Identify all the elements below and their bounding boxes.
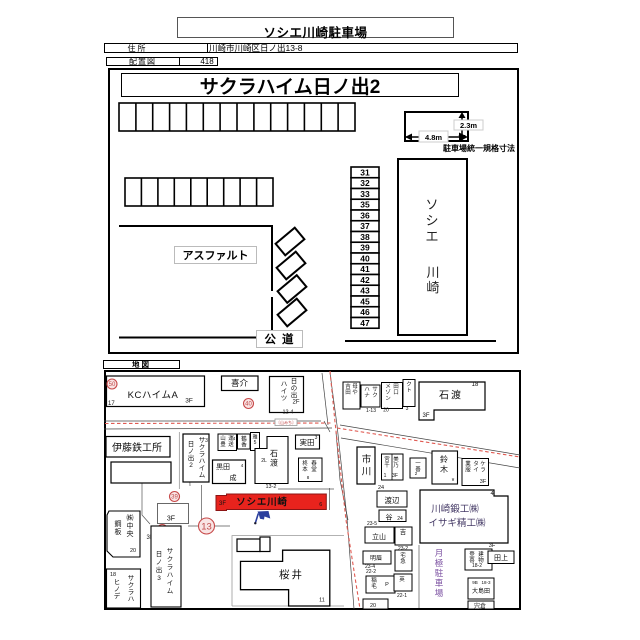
svg-text:美: 美: [393, 455, 399, 463]
svg-text:イ: イ: [473, 468, 479, 474]
svg-text:32: 32: [360, 178, 370, 188]
svg-text:ケ: ケ: [480, 461, 486, 468]
svg-text:伊藤鉄工所: 伊藤鉄工所: [112, 441, 162, 454]
svg-text:13: 13: [201, 521, 212, 532]
svg-text:43: 43: [360, 286, 370, 296]
svg-text:サ: サ: [199, 436, 206, 444]
svg-text:デ: デ: [114, 591, 121, 600]
svg-text:山: 山: [220, 434, 226, 442]
svg-text:サ: サ: [372, 386, 378, 393]
svg-text:日: 日: [188, 440, 195, 448]
svg-text:豊: 豊: [220, 440, 226, 448]
svg-text:4.8m: 4.8m: [425, 133, 442, 142]
svg-text:タ: タ: [473, 460, 479, 468]
svg-text:39: 39: [360, 243, 370, 253]
svg-text:千: 千: [384, 461, 390, 469]
svg-text:シ: シ: [425, 213, 438, 228]
svg-text:日: 日: [291, 377, 298, 385]
svg-text:ク: ク: [372, 392, 378, 399]
svg-text:3: 3: [205, 438, 208, 444]
svg-text:20: 20: [383, 408, 389, 414]
svg-text:3: 3: [315, 435, 318, 441]
svg-text:実田: 実田: [300, 437, 315, 447]
svg-text:乃: 乃: [393, 462, 399, 469]
svg-text:3F: 3F: [489, 543, 496, 549]
svg-text:柊: 柊: [302, 459, 308, 467]
svg-text:37: 37: [360, 221, 370, 231]
svg-text:木: 木: [440, 464, 448, 474]
svg-text:42: 42: [360, 275, 370, 285]
svg-text:鶴: 鶴: [241, 435, 247, 443]
svg-text:2.3m: 2.3m: [460, 121, 477, 130]
svg-text:ノ: ノ: [188, 448, 195, 455]
svg-text:24: 24: [378, 485, 384, 491]
svg-text:中: 中: [127, 521, 134, 530]
svg-text:黒田: 黒田: [216, 463, 230, 471]
svg-text:24: 24: [397, 516, 403, 522]
svg-text:イサギ精工㈱: イサギ精工㈱: [428, 517, 486, 529]
svg-text:22-2: 22-2: [366, 569, 376, 575]
svg-text:ン: ン: [385, 396, 391, 402]
svg-text:ム: ム: [167, 587, 174, 595]
svg-text:出: 出: [188, 453, 195, 462]
svg-text:ム: ム: [199, 471, 206, 479]
svg-text:母: 母: [352, 383, 358, 390]
svg-text:英: 英: [399, 575, 405, 583]
svg-text:3: 3: [157, 575, 161, 582]
svg-text:ツ: ツ: [281, 395, 288, 402]
svg-text:ハ: ハ: [128, 596, 135, 603]
svg-text:2L: 2L: [261, 458, 267, 464]
svg-text:ラ: ラ: [480, 467, 486, 474]
svg-text:渡辺: 渡辺: [385, 495, 400, 505]
svg-text:堂: 堂: [311, 465, 317, 473]
svg-text:39: 39: [171, 495, 178, 501]
svg-text:急: 急: [400, 557, 406, 565]
svg-text:ハ: ハ: [281, 381, 288, 388]
svg-text:成: 成: [230, 473, 237, 482]
svg-text:ソシエ川崎: ソシエ川崎: [236, 496, 288, 508]
svg-text:鈴: 鈴: [440, 454, 448, 464]
svg-text:6: 6: [319, 502, 322, 508]
svg-text:20: 20: [130, 548, 136, 554]
svg-text:40: 40: [245, 402, 252, 408]
svg-text:登: 登: [469, 550, 475, 558]
svg-text:口: 口: [393, 389, 399, 396]
svg-text:毛: 毛: [371, 582, 377, 590]
svg-text:ラ: ラ: [199, 450, 206, 458]
svg-text:崎: 崎: [426, 280, 439, 295]
svg-text:の: の: [291, 385, 298, 392]
svg-text:吉: 吉: [345, 383, 351, 390]
svg-text:50: 50: [109, 382, 116, 388]
svg-text:エ: エ: [425, 229, 438, 244]
svg-text:35: 35: [360, 200, 370, 210]
svg-text:石: 石: [270, 449, 278, 458]
svg-text:18: 18: [110, 572, 116, 578]
svg-text:46: 46: [360, 307, 370, 317]
svg-text:〔山みち〕: 〔山みち〕: [276, 419, 296, 425]
svg-text:41: 41: [360, 264, 370, 274]
svg-text:3F: 3F: [219, 501, 226, 507]
svg-text:喜介: 喜介: [231, 378, 249, 388]
svg-text:3F: 3F: [167, 516, 175, 523]
svg-text:ク: ク: [128, 581, 135, 589]
svg-text:日: 日: [156, 550, 163, 558]
svg-text:12-4: 12-4: [282, 410, 293, 416]
svg-text:ラ: ラ: [167, 563, 174, 571]
svg-text:谷: 谷: [386, 513, 393, 522]
svg-text:鋼: 鋼: [115, 519, 122, 528]
svg-text:渡: 渡: [270, 458, 278, 468]
svg-text:1: 1: [384, 473, 387, 479]
svg-text:サ: サ: [167, 547, 174, 555]
svg-text:川: 川: [362, 467, 372, 478]
svg-text:3F: 3F: [480, 479, 487, 485]
svg-text:3: 3: [406, 406, 409, 412]
svg-text:ク: ク: [199, 443, 206, 451]
svg-text:田上: 田上: [494, 553, 508, 562]
svg-text:ノ: ノ: [156, 559, 163, 566]
svg-text:イ: イ: [167, 580, 174, 587]
svg-text:明眉: 明眉: [370, 555, 382, 562]
svg-text:18-2: 18-2: [472, 563, 482, 569]
svg-text:KCハイムA: KCハイムA: [128, 390, 179, 401]
svg-text:11: 11: [319, 598, 325, 604]
svg-text:3F: 3F: [185, 398, 193, 405]
svg-text:5: 5: [254, 440, 257, 446]
svg-text:18: 18: [472, 382, 479, 388]
svg-text:㈱: ㈱: [127, 513, 134, 522]
svg-text:22-1: 22-1: [397, 593, 407, 599]
svg-text:本: 本: [302, 465, 308, 473]
svg-text:稲: 稲: [371, 576, 377, 584]
svg-text:P: P: [385, 582, 389, 588]
svg-text:40: 40: [360, 253, 370, 263]
svg-text:建: 建: [478, 550, 484, 558]
svg-text:23-5: 23-5: [367, 521, 377, 527]
svg-text:2F: 2F: [292, 400, 299, 406]
svg-text:大島田: 大島田: [472, 587, 490, 595]
svg-text:45: 45: [360, 296, 370, 306]
svg-text:3F: 3F: [422, 413, 429, 419]
svg-text:出: 出: [291, 390, 298, 399]
svg-text:2: 2: [189, 462, 193, 469]
svg-text:3F: 3F: [392, 473, 398, 479]
svg-text:駐: 駐: [435, 568, 444, 578]
svg-text:47: 47: [360, 318, 370, 328]
svg-text:1-13: 1-13: [366, 408, 376, 414]
svg-text:20: 20: [370, 603, 376, 609]
svg-text:ク: ク: [406, 381, 412, 388]
svg-text:車: 車: [435, 578, 444, 588]
svg-text:ク: ク: [167, 555, 174, 563]
svg-text:送: 送: [228, 440, 234, 448]
svg-text:17: 17: [108, 401, 115, 407]
svg-text:サ: サ: [128, 574, 135, 582]
svg-text:13-2: 13-2: [265, 484, 276, 490]
svg-text:月: 月: [435, 548, 444, 558]
svg-text:石渡: 石渡: [439, 389, 463, 402]
svg-text:宮: 宮: [384, 455, 390, 463]
svg-text:36: 36: [360, 210, 370, 220]
svg-text:春: 春: [311, 459, 317, 467]
svg-text:ノ: ノ: [114, 586, 121, 593]
svg-text:ト: ト: [406, 388, 412, 394]
svg-text:イ: イ: [199, 465, 206, 472]
svg-text:宍倉: 宍倉: [474, 602, 486, 610]
svg-text:立山: 立山: [372, 532, 386, 541]
svg-text:板: 板: [115, 527, 122, 536]
svg-text:央: 央: [127, 529, 134, 538]
svg-text:ナ: ナ: [364, 392, 370, 399]
svg-text:田: 田: [393, 383, 399, 390]
svg-text:田: 田: [345, 389, 351, 396]
svg-text:市: 市: [362, 454, 372, 466]
svg-text:極: 極: [435, 558, 444, 568]
svg-text:33: 33: [360, 189, 370, 199]
svg-text:イ: イ: [281, 388, 288, 395]
svg-text:場: 場: [435, 588, 444, 598]
svg-text:ラ: ラ: [128, 588, 135, 596]
svg-text:服: 服: [465, 467, 471, 474]
svg-text:や: や: [352, 388, 358, 396]
svg-text:ヒ: ヒ: [114, 578, 121, 586]
svg-text:業: 業: [465, 460, 471, 468]
svg-text:川: 川: [426, 265, 439, 280]
svg-text:18-3: 18-3: [481, 580, 491, 585]
svg-text:ハ: ハ: [199, 458, 206, 465]
svg-text:香: 香: [241, 441, 247, 449]
svg-text:ハ: ハ: [167, 572, 174, 579]
svg-text:ゾ: ゾ: [385, 389, 391, 396]
svg-text:出: 出: [156, 565, 163, 574]
svg-text:31: 31: [360, 167, 370, 177]
svg-text:4: 4: [490, 491, 493, 497]
svg-text:宅: 宅: [400, 551, 406, 559]
svg-text:桜井: 桜井: [279, 568, 304, 581]
svg-text:ソ: ソ: [425, 197, 438, 212]
svg-text:9B: 9B: [472, 580, 478, 585]
svg-text:川崎鍛工㈱: 川崎鍛工㈱: [431, 503, 479, 515]
svg-text:38: 38: [360, 232, 370, 242]
svg-text:吉: 吉: [400, 528, 407, 536]
